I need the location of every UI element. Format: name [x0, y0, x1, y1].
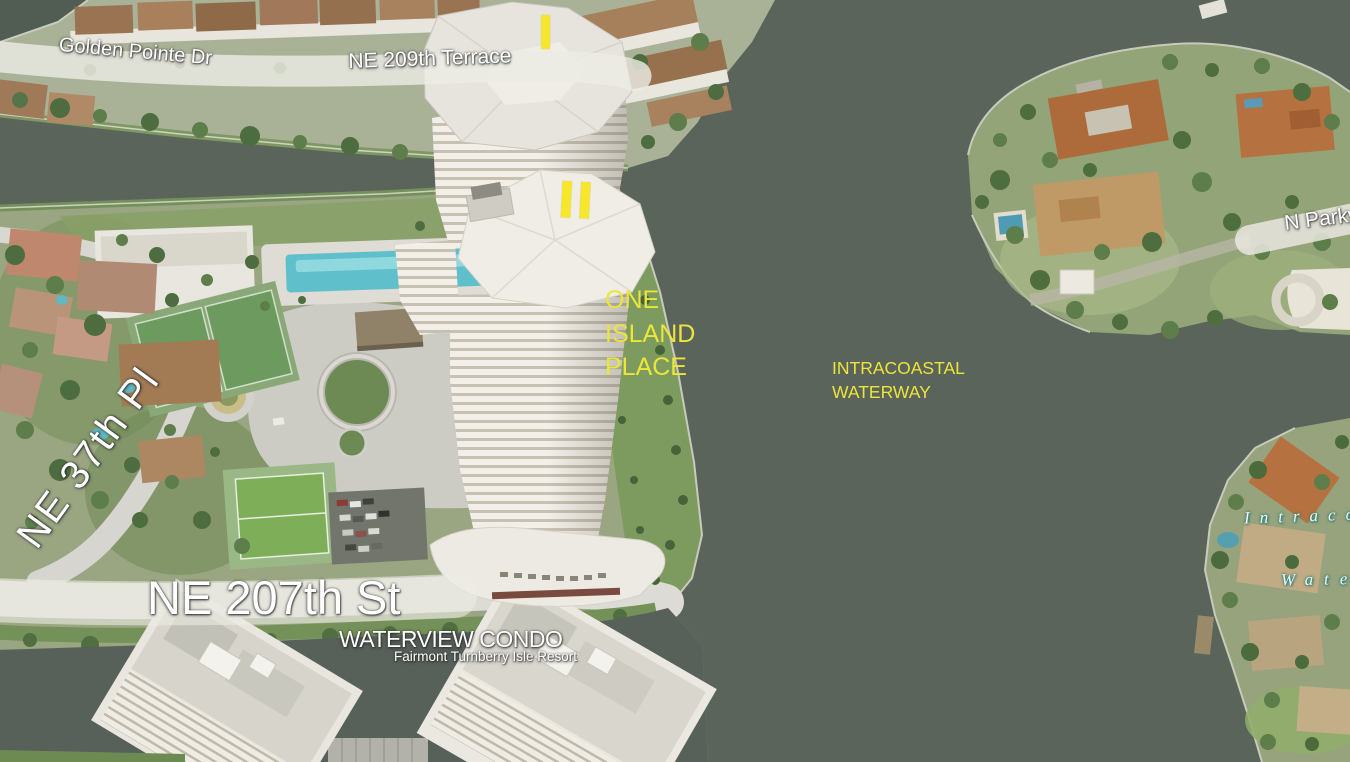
water-label-partial-waterway: Waterway [1281, 569, 1350, 590]
one-island-place-line1: ONE [605, 284, 695, 318]
intracoastal-line2: WATERWAY [832, 380, 965, 404]
aerial-map-canvas[interactable]: Golden Pointe Dr NE 209th Terrace I II O… [0, 0, 1350, 762]
poi-label-fairmont-turnberry: Fairmont Turnberry Isle Resort [394, 650, 577, 665]
tower-1-marker: I [537, 8, 554, 59]
tower-2-marker: II [556, 173, 596, 230]
road-label-ne-207th-st: NE 207th St [147, 572, 400, 624]
one-island-place-line3: PLACE [605, 351, 695, 385]
intracoastal-line1: INTRACOASTAL [832, 356, 965, 380]
one-island-place-line2: ISLAND [605, 318, 695, 352]
water-label-intracoastal-waterway: INTRACOASTAL WATERWAY [832, 356, 965, 404]
poi-label-one-island-place: ONE ISLAND PLACE [605, 284, 695, 385]
